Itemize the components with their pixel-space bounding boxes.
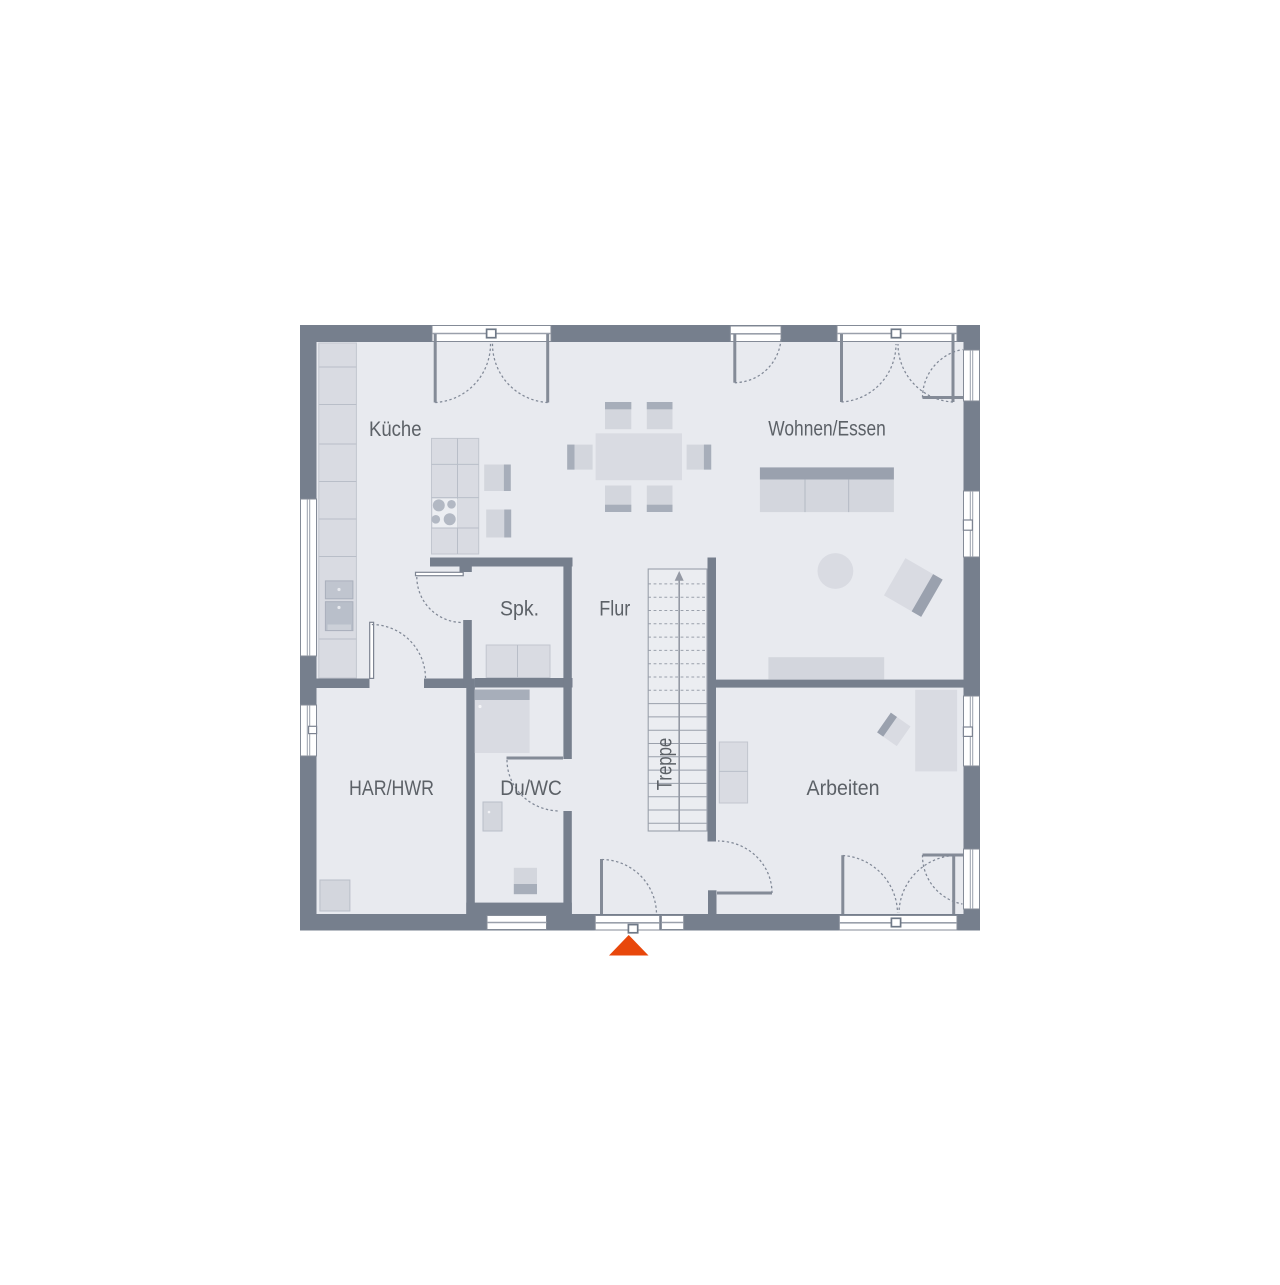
svg-text:HAR/HWR: HAR/HWR <box>349 777 434 800</box>
svg-text:Treppe: Treppe <box>654 738 677 791</box>
svg-text:Spk.: Spk. <box>500 597 539 620</box>
svg-text:Wohnen/Essen: Wohnen/Essen <box>768 417 886 440</box>
svg-text:Du/WC: Du/WC <box>500 777 562 800</box>
svg-text:Küche: Küche <box>369 418 422 441</box>
svg-text:Flur: Flur <box>599 597 630 620</box>
svg-text:Arbeiten: Arbeiten <box>807 777 880 800</box>
